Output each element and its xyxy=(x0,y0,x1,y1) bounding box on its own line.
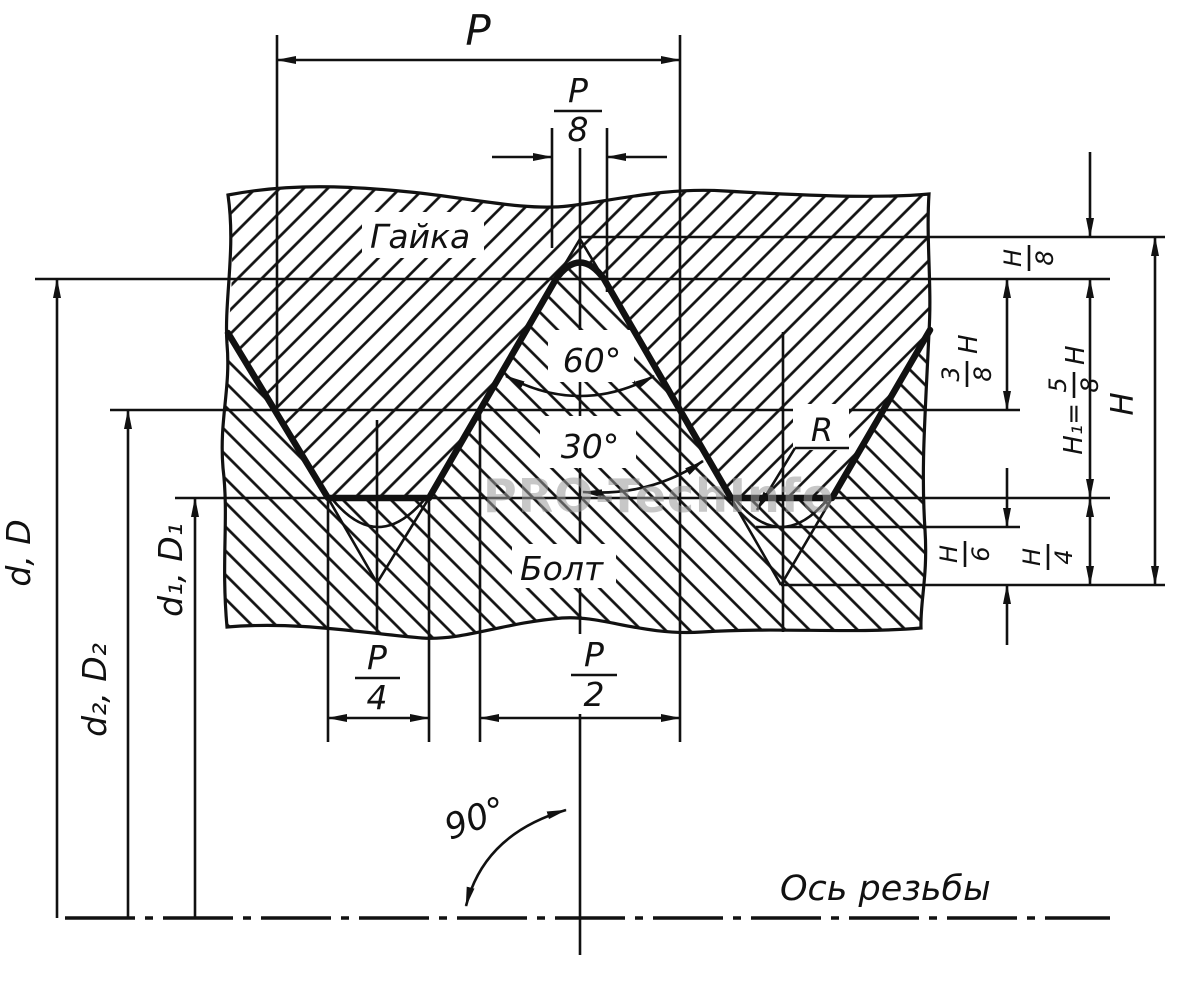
h1-prefix: H₁= xyxy=(1059,403,1089,455)
h8-fraction: H 8 xyxy=(999,245,1059,271)
h38-numerator: 3 xyxy=(937,366,965,381)
p8-denominator: 8 xyxy=(568,110,589,149)
radius-label: R xyxy=(811,411,833,449)
h6-numerator: H xyxy=(935,545,963,563)
h38-label: 3 8 H xyxy=(937,334,997,387)
h-total-label: H xyxy=(1105,392,1141,415)
text-labels: P P 8 Гайка Болт 60° 30° R 90° Ось резьб… xyxy=(0,6,1141,909)
h6-fraction: H 6 xyxy=(935,541,995,567)
h4-numerator: H xyxy=(1018,548,1046,566)
angle-90-label: 90° xyxy=(439,790,511,849)
h4-fraction: H 4 xyxy=(1018,544,1078,570)
p4-fraction: P 4 xyxy=(355,638,400,717)
h8-numerator: H xyxy=(999,249,1027,267)
p8-fraction: P 8 xyxy=(554,71,602,149)
pitch-label: P xyxy=(465,6,491,55)
thread-profile-diagram: P P 8 Гайка Болт 60° 30° R 90° Ось резьб… xyxy=(0,0,1200,987)
h1-denominator: 8 xyxy=(1076,377,1104,392)
minor-diameter-label: d₁, D₁ xyxy=(151,523,190,617)
diagram-canvas: P P 8 Гайка Болт 60° 30° R 90° Ось резьб… xyxy=(0,0,1200,987)
pitch-diameter-label: d₂, D₂ xyxy=(75,643,114,737)
watermark: PRO-TechInfo xyxy=(483,469,834,523)
h38-denominator: 8 xyxy=(969,366,997,381)
thread-axis-label: Ось резьбы xyxy=(780,869,991,909)
h38-suffix: H xyxy=(954,334,984,354)
h4-denominator: 4 xyxy=(1050,549,1078,564)
h1-suffix: H xyxy=(1061,345,1091,365)
h8-denominator: 8 xyxy=(1031,250,1059,265)
h1-label: H₁= 5 8 H xyxy=(1044,345,1104,454)
p8-numerator: P xyxy=(568,71,588,110)
nut-label: Гайка xyxy=(370,217,470,256)
p2-denominator: 2 xyxy=(584,675,605,714)
p4-denominator: 4 xyxy=(367,678,388,717)
angle-30-label: 30° xyxy=(561,427,620,466)
bolt-label: Болт xyxy=(520,549,605,588)
p2-numerator: P xyxy=(584,635,604,674)
p4-numerator: P xyxy=(367,638,387,677)
major-diameter-label: d, D xyxy=(0,519,38,586)
angle-60-label: 60° xyxy=(563,341,622,380)
h6-denominator: 6 xyxy=(967,546,995,561)
h1-numerator: 5 xyxy=(1044,377,1072,392)
